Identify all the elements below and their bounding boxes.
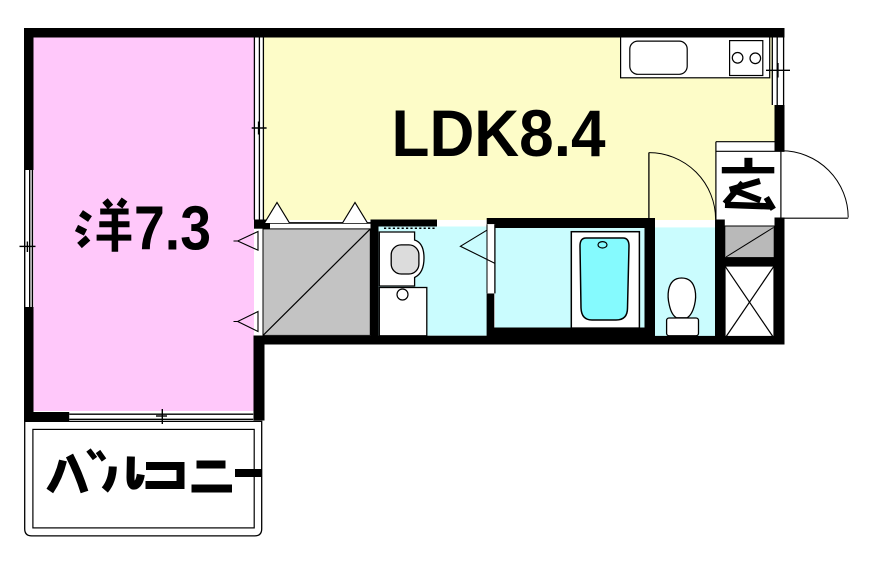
svg-text:7.3: 7.3	[134, 193, 211, 263]
svg-text:LDK8.4: LDK8.4	[392, 96, 606, 170]
